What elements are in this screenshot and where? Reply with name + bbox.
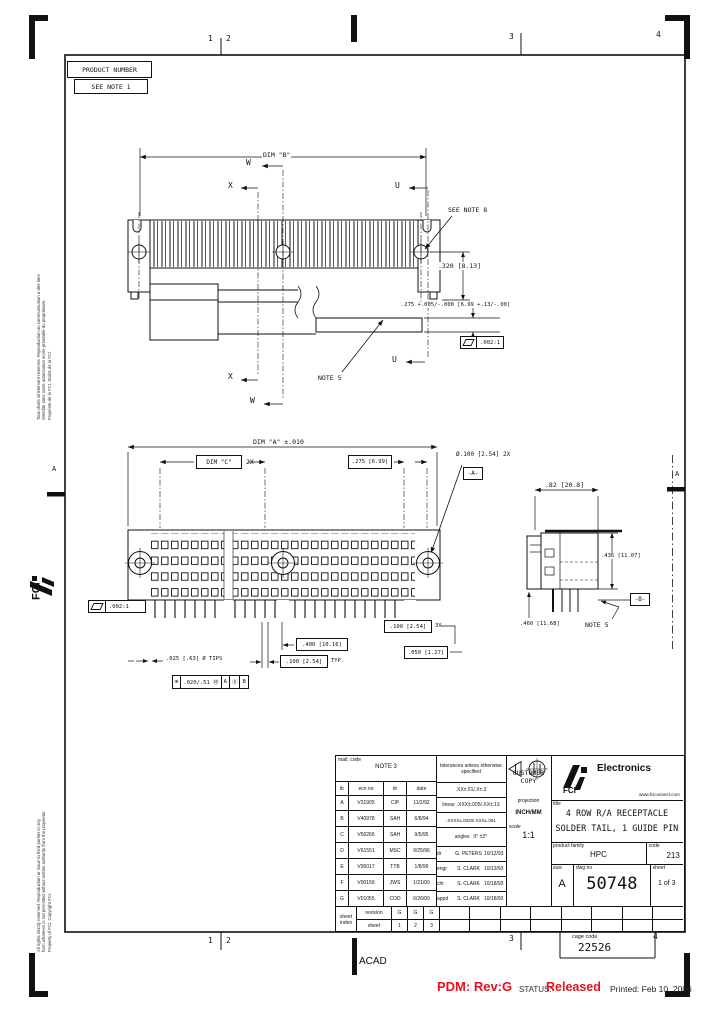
index-cell bbox=[623, 907, 653, 932]
drawing-sheet: 1 2 3 4 1 2 3 4 A A PRODUCT NUMBER SEE N… bbox=[0, 0, 720, 1012]
tolerance-row-2: .XXX±.005/.XX±.13 bbox=[457, 802, 500, 808]
family-label: product family bbox=[553, 843, 584, 849]
flatness-icon bbox=[90, 603, 103, 610]
sheet-index-strip: sheetindex revision sheet G1 G2 G3 bbox=[336, 906, 683, 932]
code-label: code bbox=[649, 843, 660, 849]
fci-logo-icon bbox=[26, 570, 56, 600]
revision-row: DV61551MSC9/25/96 bbox=[336, 843, 436, 859]
brand-url: www.fciconnect.com bbox=[639, 792, 680, 797]
dim-100-3x-qty: 3X bbox=[435, 623, 442, 629]
index-cell bbox=[562, 907, 592, 932]
family-value: HPC bbox=[551, 850, 646, 859]
size-value: A bbox=[551, 878, 573, 890]
dim-400-box: .400 [10.16] bbox=[296, 638, 348, 651]
dim-050-label: .050 [1.27] bbox=[408, 650, 444, 656]
revision-row: CV50266SAH9/5/95 bbox=[336, 827, 436, 843]
revision-row: EV95017TTB1/8/99 bbox=[336, 859, 436, 875]
note-5-label: NOTE 5 bbox=[318, 374, 341, 382]
datum-a-label: -A- bbox=[468, 470, 479, 477]
fcf-datum-3: B bbox=[239, 676, 247, 688]
fcf-datum-1: A bbox=[221, 676, 229, 688]
position-fcf: ⊕ .020/.51 Ⓜ A Ⓢ B bbox=[172, 675, 249, 689]
dim-275-label: .275 [6.99] bbox=[352, 459, 388, 465]
index-cell bbox=[470, 907, 500, 932]
revision-row: BV40978SAH6/8/94 bbox=[336, 811, 436, 827]
units-label: INCH/MM bbox=[515, 810, 541, 816]
printed-date-label: Printed: Feb 10, 2006 bbox=[610, 984, 692, 994]
dim-c-label: DIM "C" bbox=[206, 459, 231, 466]
zone-bottom-2: 2 bbox=[226, 936, 231, 945]
flatness-icon bbox=[462, 339, 474, 346]
projection-label: projection bbox=[518, 798, 540, 804]
sheet-index-label: sheetindex bbox=[336, 907, 357, 932]
matl-code-label: matl. code bbox=[336, 756, 436, 764]
index-sheet-label: sheet bbox=[357, 920, 391, 932]
size-label: size bbox=[553, 865, 562, 871]
dim-050-box: .050 [1.27] bbox=[404, 646, 448, 659]
flatness-flag-top: .002:1 bbox=[460, 336, 504, 349]
tolerance-row-3: .XXXX±.0020/.XXX±.051 bbox=[436, 813, 506, 828]
front-view-geometry bbox=[125, 447, 462, 668]
index-cell bbox=[531, 907, 561, 932]
flatness-flag-front: .002:1 bbox=[88, 600, 146, 613]
dim-400-label: .400 [10.16] bbox=[302, 642, 342, 648]
zone-bottom-4: 4 bbox=[653, 932, 658, 941]
dim-c-box: DIM "C" bbox=[196, 455, 242, 469]
approval-row-chr: chr S. CLARK 10/18/93 bbox=[436, 877, 506, 892]
zone-top-2: 2 bbox=[226, 34, 231, 43]
copyright-notice-fr: Tous droits strictement reserves. Reprod… bbox=[36, 274, 52, 420]
dim-100-typ-suffix: TYP. bbox=[331, 658, 344, 664]
see-note-1-box: SEE NOTE 1 bbox=[74, 79, 148, 94]
zone-bottom-1: 1 bbox=[208, 936, 213, 945]
dim-320-label: .320 [8.13] bbox=[437, 262, 482, 270]
zone-left-a: A bbox=[52, 465, 56, 473]
zone-bottom-3: 3 bbox=[509, 934, 514, 943]
dim-436-label: .436 [11.07] bbox=[600, 553, 642, 559]
matl-code-value: NOTE 3 bbox=[336, 764, 436, 770]
index-cell bbox=[440, 907, 470, 932]
copyright-notice-en: All rights strictly reserved. Reproducti… bbox=[36, 810, 52, 952]
angles-value: 0° ±2° bbox=[474, 834, 488, 840]
section-u-label: U bbox=[395, 181, 400, 190]
section-u2-label: U bbox=[392, 355, 397, 364]
position-icon: ⊕ bbox=[173, 676, 180, 688]
dim-c-qty: 2X bbox=[246, 458, 254, 466]
product-number-box: PRODUCT NUMBER bbox=[67, 61, 152, 78]
see-note-1-label: SEE NOTE 1 bbox=[91, 83, 130, 91]
index-col-1: G1 bbox=[392, 907, 408, 932]
index-cell bbox=[501, 907, 531, 932]
dim-100-typ-box: .100 [2.54] bbox=[280, 655, 328, 668]
product-number-label: PRODUCT NUMBER bbox=[82, 66, 137, 74]
section-x-label: X bbox=[228, 181, 233, 190]
sheet-label: sheet bbox=[653, 865, 665, 871]
index-col-3: G3 bbox=[424, 907, 440, 932]
index-cell bbox=[653, 907, 682, 932]
dwg-no-label: dwg no bbox=[576, 865, 592, 871]
revision-row: FV00159JWS1/21/00 bbox=[336, 875, 436, 891]
section-x2-label: X bbox=[228, 372, 233, 381]
dim-460-label: .460 [11.68] bbox=[520, 621, 560, 627]
drawing-title-line2: SOLDER TAIL, 1 GUIDE PIN bbox=[551, 824, 683, 834]
zone-top-4: 4 bbox=[656, 30, 661, 39]
scale-value: 1:1 bbox=[522, 830, 535, 840]
rev-header-date: date bbox=[407, 782, 436, 795]
approval-row-dr: dr G. PETERS 10/12/93 bbox=[436, 847, 506, 862]
see-note-8-label: SEE NOTE 8 bbox=[448, 206, 487, 214]
dia-100-label: Ø.100 [2.54] 2X bbox=[455, 451, 511, 458]
linear-label: linear bbox=[442, 802, 454, 808]
dim-a-label: DIM "A" ±.010 bbox=[252, 438, 305, 446]
sheet-value: 1 of 3 bbox=[651, 880, 683, 887]
approval-row-engr: engr S. CLARK 10/13/93 bbox=[436, 862, 506, 877]
revision-row: GV01055COD6/26/00 bbox=[336, 891, 436, 906]
code-value: 213 bbox=[666, 851, 679, 860]
index-revision-label: revision bbox=[357, 907, 391, 920]
cage-code-value: 22526 bbox=[578, 941, 611, 954]
flatness-value: .002:1 bbox=[105, 601, 132, 612]
datum-b-box: -B- bbox=[630, 593, 650, 606]
brand-sub: FCI bbox=[563, 786, 576, 795]
dwg-no-value: 50748 bbox=[574, 874, 650, 894]
tolerance-header: tolerances unless otherwise specified bbox=[436, 756, 506, 783]
brand-name: Electronics bbox=[597, 763, 651, 774]
datum-b-label: -B- bbox=[635, 596, 646, 603]
title-label: title bbox=[553, 801, 561, 807]
dim-275-tol-label: .275 +.005/-.000 [6.99 +.13/-.00] bbox=[400, 302, 511, 308]
index-col-2: G2 bbox=[408, 907, 424, 932]
index-cell bbox=[592, 907, 622, 932]
drawing-title-line1: 4 ROW R/A RECEPTACLE bbox=[551, 809, 683, 819]
angles-label: angles bbox=[455, 834, 470, 840]
title-block: matl. code NOTE 3 ltr ecn no dr date AV3… bbox=[335, 755, 685, 932]
dim-275-box: .275 [6.99] bbox=[348, 455, 392, 469]
note-5-side-label: NOTE 5 bbox=[585, 621, 608, 629]
zone-right-a: A bbox=[675, 470, 679, 478]
dim-100-3x-label: .100 [2.54] bbox=[390, 624, 426, 630]
flatness-value: .002:1 bbox=[476, 337, 503, 348]
section-w-label: W bbox=[246, 158, 251, 167]
fcf-datum-2: Ⓢ bbox=[229, 676, 240, 688]
dim-100-typ-label: .100 [2.54] bbox=[286, 659, 322, 665]
zone-top-1: 1 bbox=[208, 34, 213, 43]
status-value: Released bbox=[546, 980, 601, 994]
dim-b-label: DIM "B" bbox=[262, 151, 291, 159]
fcf-tolerance: .020/.51 Ⓜ bbox=[180, 676, 220, 688]
third-angle-projection-icon bbox=[506, 756, 548, 782]
cage-code-label: cage code bbox=[572, 934, 597, 940]
zone-top-3: 3 bbox=[509, 32, 514, 41]
rev-header-ltr: ltr bbox=[336, 782, 349, 795]
approval-row-appd: appd S. CLARK 10/18/93 bbox=[436, 892, 506, 906]
datum-a-box: -A- bbox=[463, 467, 483, 480]
revision-row: AV31905CIP11/2/92 bbox=[336, 795, 436, 811]
rev-header-dr: dr bbox=[384, 782, 407, 795]
acad-label: ACAD bbox=[359, 956, 387, 967]
section-w2-label: W bbox=[250, 396, 255, 405]
dim-025-label: .025 [.63] Ø TIPS bbox=[166, 656, 222, 662]
dim-82-label: .82 [20.8] bbox=[544, 481, 585, 489]
tolerance-row-1: .XX±.01/.X±.3 bbox=[436, 783, 506, 798]
fci-margin-logo: FCI bbox=[26, 516, 60, 600]
top-view-geometry bbox=[128, 148, 500, 404]
rev-header-ecn: ecn no bbox=[349, 782, 384, 795]
pdm-rev-label: PDM: Rev:G bbox=[437, 979, 512, 994]
dim-100-3x-box: .100 [2.54] bbox=[384, 620, 432, 633]
scale-label: scale bbox=[506, 824, 521, 830]
